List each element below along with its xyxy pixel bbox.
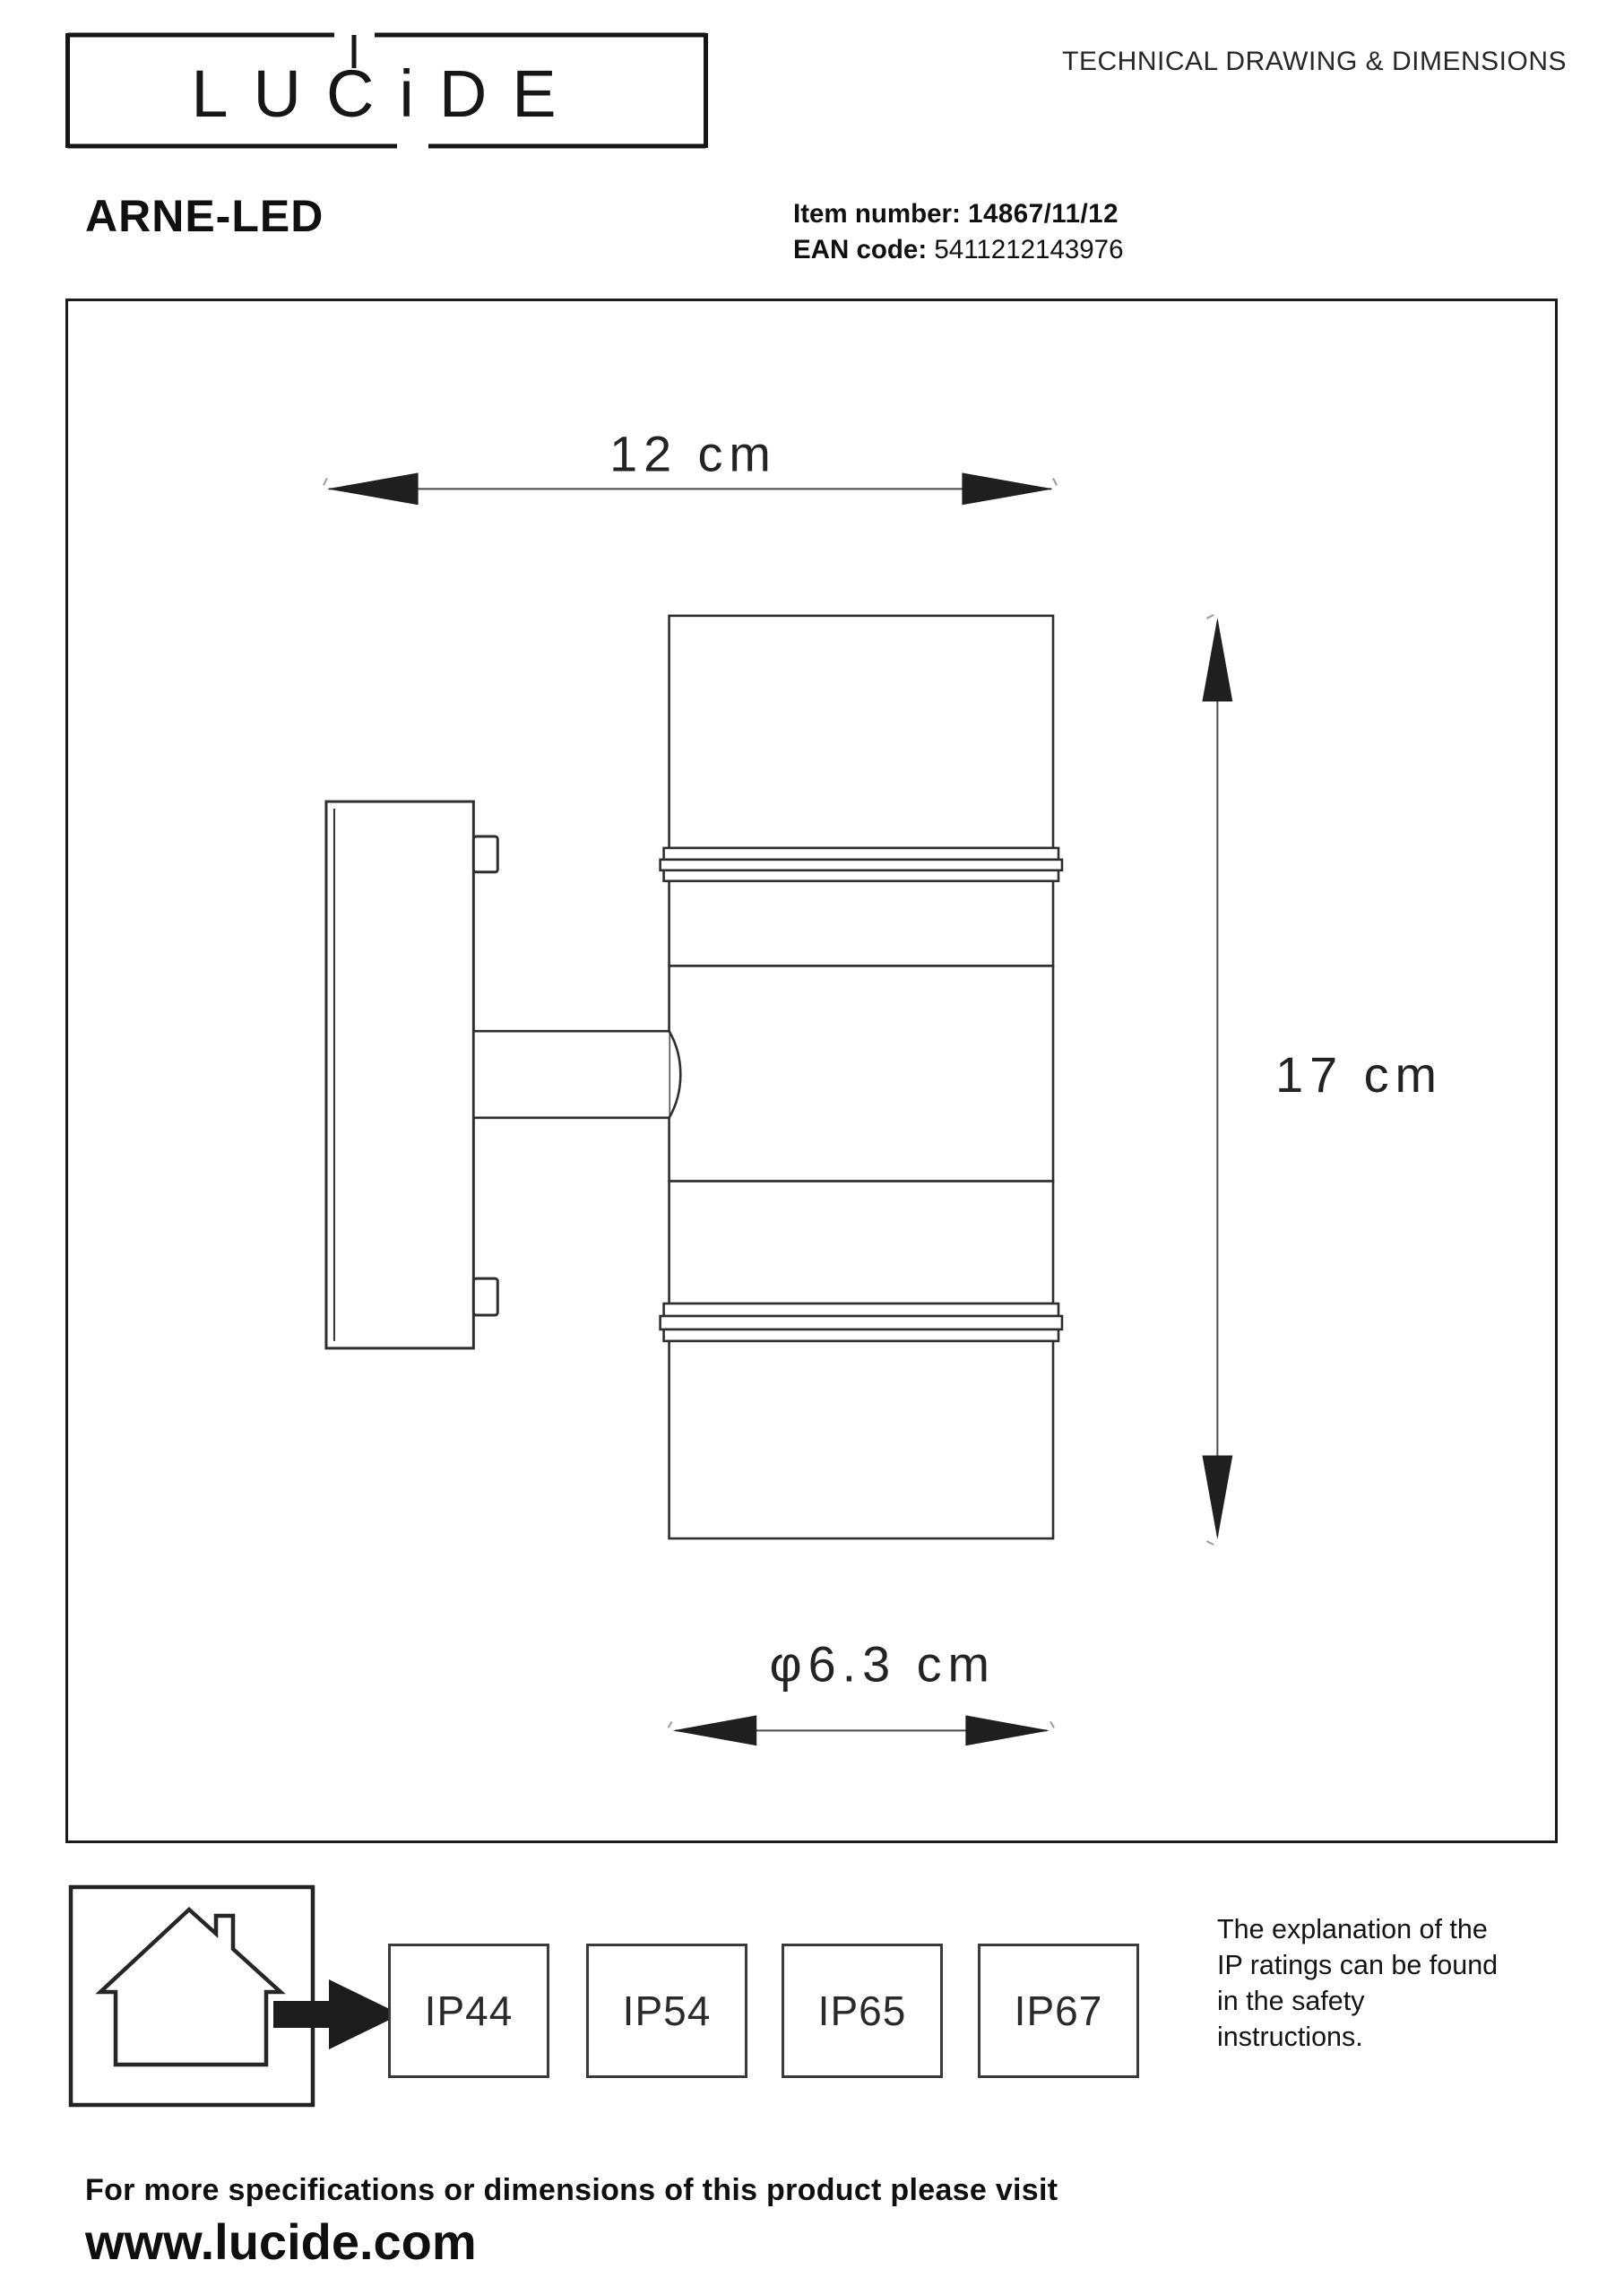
logo-text: LUCiDE <box>191 56 581 131</box>
technical-drawing: 12 cm 17 cm φ6.3 cm <box>68 301 1555 1840</box>
product-codes: Item number: 14867/11/12 EAN code: 54112… <box>793 196 1123 268</box>
ip-rating-label: IP67 <box>1015 1987 1103 2035</box>
mounting-arm <box>473 1031 680 1118</box>
footer-website: www.lucide.com <box>85 2213 477 2271</box>
item-number-value: 14867/11/12 <box>968 199 1119 229</box>
house-badge-frame <box>71 1887 313 2105</box>
ip-rating-badge-ip44: IP44 <box>388 1944 549 2078</box>
indoor-use-badge <box>67 1883 412 2111</box>
ean-code-row: EAN code: 5411212143976 <box>793 232 1123 268</box>
fixture-cylinder <box>661 616 1062 1538</box>
ean-code-value: 5411212143976 <box>934 235 1123 264</box>
page-title: TECHNICAL DRAWING & DIMENSIONS <box>1062 47 1567 77</box>
diameter-dimension-label: φ6.3 cm <box>770 1636 996 1693</box>
ip-rating-badge-ip65: IP65 <box>782 1944 943 2078</box>
product-name: ARNE-LED <box>85 190 324 242</box>
spec-sheet-page: { "header": { "logo_text": "LUCiDE", "ta… <box>0 0 1624 2295</box>
diameter-dimension-arrow: φ6.3 cm <box>669 1636 1054 1746</box>
footer-text: For more specifications or dimensions of… <box>85 2173 1058 2208</box>
width-dimension-arrow: 12 cm <box>324 425 1057 505</box>
ip-rating-label: IP65 <box>818 1987 907 2035</box>
lucide-logo: LUCiDE <box>65 32 708 149</box>
plate-clip-bottom <box>473 1278 497 1315</box>
ip-rating-label: IP54 <box>623 1987 712 2035</box>
item-number-row: Item number: 14867/11/12 <box>793 196 1123 232</box>
ip-rating-label: IP44 <box>425 1987 514 2035</box>
ip-rating-badge-ip67: IP67 <box>978 1944 1139 2078</box>
ip-ratings-note: The explanation of the IP ratings can be… <box>1217 1911 1602 2055</box>
height-dimension-label: 17 cm <box>1275 1046 1443 1103</box>
technical-drawing-frame: 12 cm 17 cm φ6.3 cm <box>65 299 1558 1843</box>
height-dimension-arrow: 17 cm <box>1202 615 1442 1545</box>
wall-plate <box>326 801 497 1348</box>
ip-rating-badge-ip54: IP54 <box>586 1944 747 2078</box>
width-dimension-label: 12 cm <box>609 425 777 481</box>
item-number-label: Item number: <box>793 199 961 229</box>
plate-clip-top <box>473 836 497 872</box>
ean-code-label: EAN code: <box>793 235 927 264</box>
